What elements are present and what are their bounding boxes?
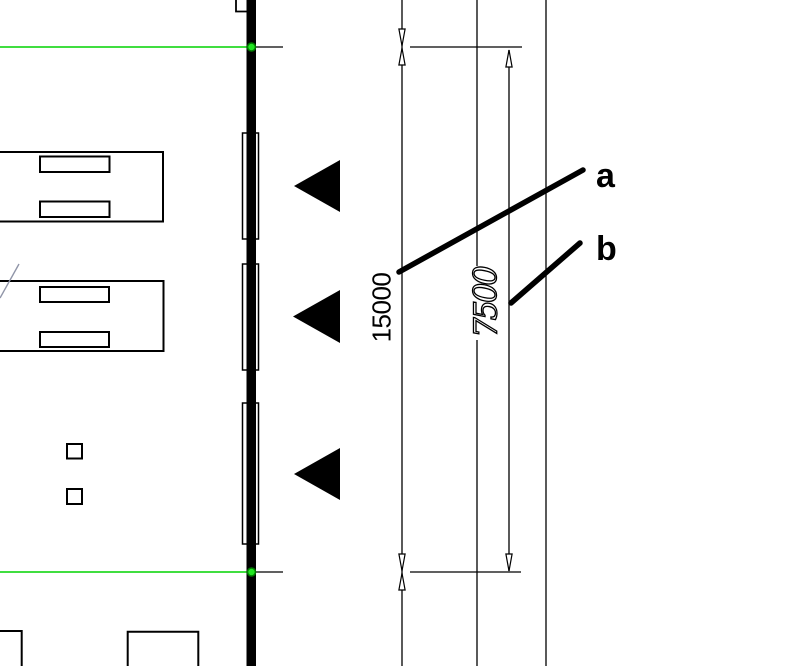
building-3-outline	[0, 631, 22, 666]
building-1-outline	[0, 152, 163, 222]
building-1-window-1	[40, 157, 110, 173]
dimension-text-7500: 7500	[467, 266, 505, 338]
small-structure-2	[67, 489, 82, 504]
cad-drawing-canvas: 15000 7500 a b	[0, 0, 796, 666]
building-2-window-1	[40, 287, 109, 302]
building-2	[0, 281, 164, 351]
building-2-window-2	[40, 332, 109, 347]
dim-arrow-icon-7500-top	[506, 50, 512, 67]
curb-notch	[236, 0, 247, 12]
building-2-outline	[0, 281, 164, 351]
leader-line-a	[399, 170, 583, 272]
dim-arrow-icon-top-up	[399, 48, 405, 65]
label-a: a	[596, 157, 616, 195]
direction-triangle-icon-1	[294, 160, 340, 212]
dim-arrow-icon-bottom-down	[399, 554, 405, 571]
survey-marker-icon-top	[248, 43, 256, 51]
building-4-outline	[128, 632, 199, 666]
dim-arrow-icon-top-down	[399, 29, 405, 46]
direction-triangle-icon-3	[294, 448, 340, 500]
dimension-text-15000: 15000	[367, 273, 397, 343]
label-b: b	[596, 230, 617, 268]
road-edge-thick-line	[247, 0, 257, 666]
dim-arrow-icon-7500-bottom	[506, 554, 512, 571]
small-structure-1	[67, 444, 82, 459]
direction-triangle-icon-2	[293, 290, 340, 343]
site-plan-svg: 15000 7500 a b	[0, 0, 796, 666]
dim-arrow-icon-bottom-up	[399, 573, 405, 590]
survey-marker-icon-bottom	[248, 568, 256, 576]
building-1-window-2	[40, 202, 110, 218]
building-1	[0, 152, 163, 222]
